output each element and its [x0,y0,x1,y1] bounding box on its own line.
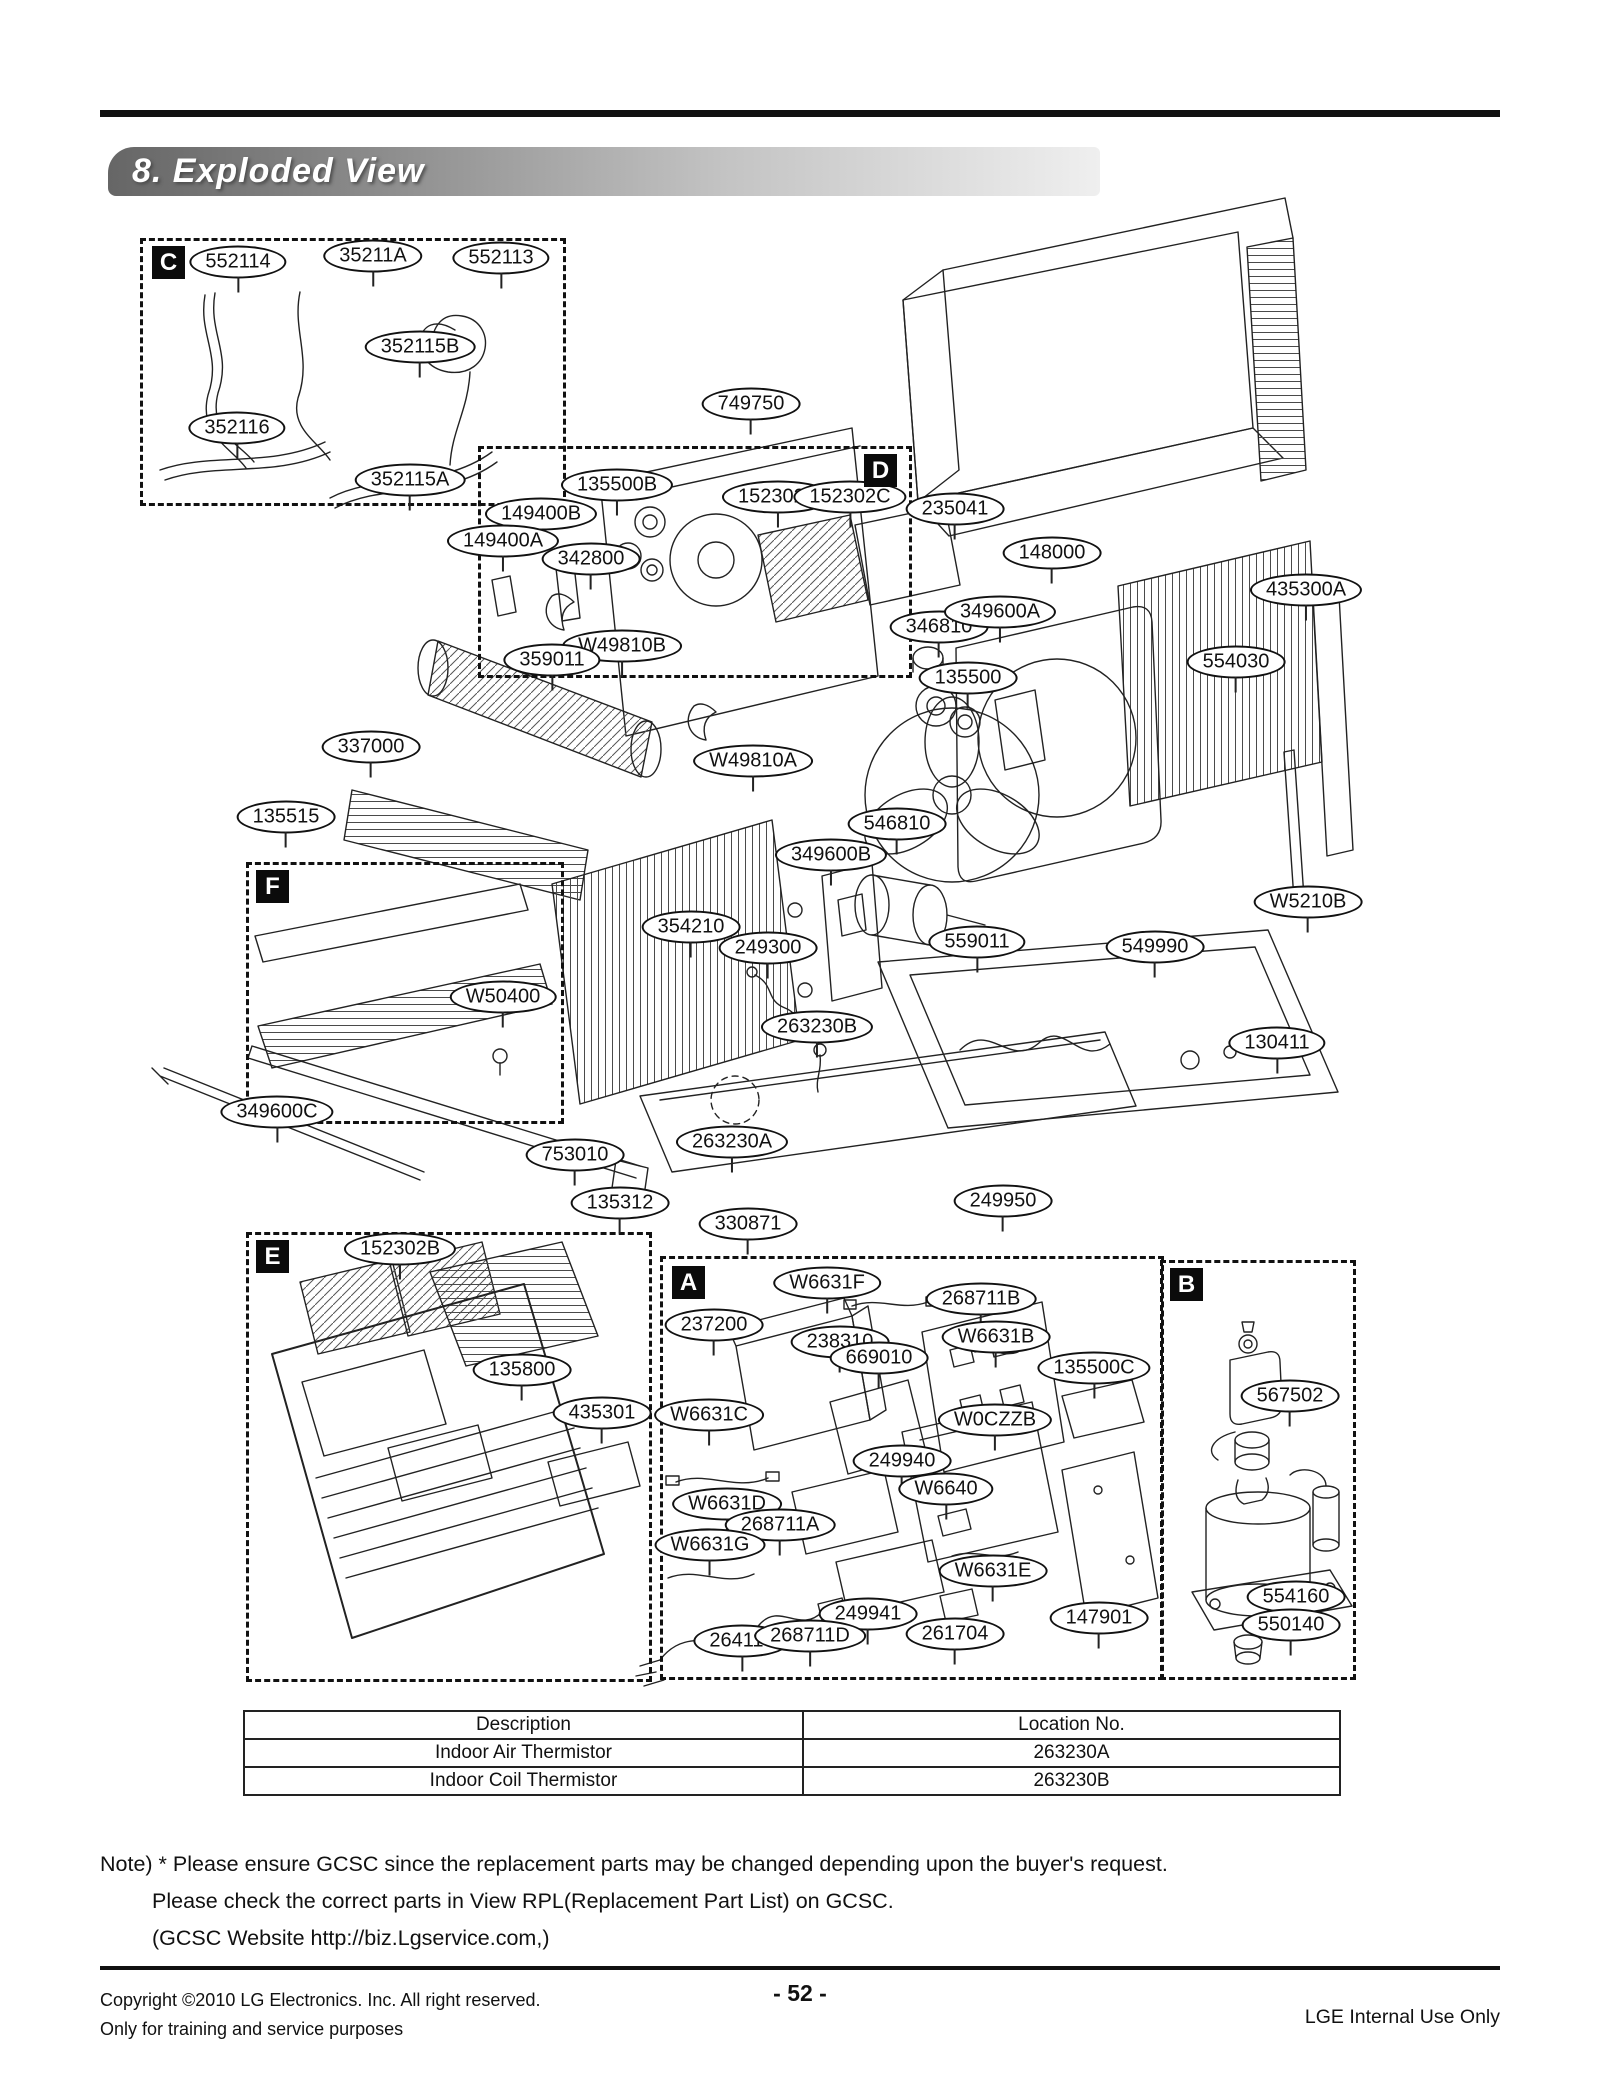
footer-rule [100,1966,1500,1970]
part-label-149400A: 149400A [447,525,559,558]
table-header-description: Description [244,1711,803,1739]
part-label-359011: 359011 [503,644,600,677]
page-number: - 52 - [0,1980,1600,2007]
table-cell-location: 263230A [803,1739,1340,1767]
part-label-237200: 237200 [665,1309,764,1342]
thermistor-location-table: Description Location No. Indoor Air Ther… [243,1710,1341,1796]
part-label-147901: 147901 [1050,1602,1149,1635]
part-label-249950: 249950 [954,1185,1053,1218]
part-label-669010: 669010 [830,1342,929,1375]
part-label-268711B: 268711B [926,1283,1037,1316]
section-badge-A: A [672,1266,705,1299]
table-row: Indoor Air Thermistor 263230A [244,1739,1340,1767]
part-label-261704: 261704 [906,1618,1005,1651]
part-label-550140: 550140 [1242,1609,1341,1642]
part-label-546810: 546810 [848,808,947,841]
manual-page: 8. Exploded View [0,0,1600,2084]
part-label-135312: 135312 [571,1187,670,1220]
part-label-249300: 249300 [719,932,818,965]
part-label-W49810A: W49810A [693,745,813,778]
part-label-337000: 337000 [322,731,421,764]
part-label-749750: 749750 [702,388,801,421]
part-label-135500: 135500 [919,662,1018,695]
part-label-W6631B: W6631B [942,1321,1051,1354]
section-box-E [246,1232,652,1682]
part-label-349600B: 349600B [775,839,887,872]
part-label-554030: 554030 [1187,646,1286,679]
table-cell-location: 263230B [803,1767,1340,1795]
note-line: Please check the correct parts in View R… [100,1883,1168,1920]
part-label-352116: 352116 [188,412,285,445]
part-label-330871: 330871 [699,1208,798,1241]
part-label-349600C: 349600C [220,1096,333,1129]
part-label-W6631F: W6631F [773,1267,881,1300]
part-label-135800: 135800 [473,1354,572,1387]
copyright-line: Only for training and service purposes [100,2015,540,2044]
part-label-135500C: 135500C [1037,1352,1150,1385]
part-label-W6640: W6640 [898,1473,993,1506]
part-label-342800: 342800 [542,543,641,576]
part-label-35211A: 35211A [323,240,422,273]
part-label-152302B: 152302B [344,1233,456,1266]
part-label-W6631C: W6631C [654,1399,764,1432]
part-label-352115B: 352115B [365,331,476,364]
part-label-135515: 135515 [237,801,336,834]
table-cell-description: Indoor Coil Thermistor [244,1767,803,1795]
section-badge-C: C [152,246,185,279]
part-label-W6631G: W6631G [655,1529,766,1562]
part-label-W0CZZB: W0CZZB [938,1404,1052,1437]
note-block: Note) * Please ensure GCSC since the rep… [100,1846,1168,1957]
part-label-559011: 559011 [928,926,1025,959]
part-label-552114: 552114 [189,246,286,279]
part-label-W6631E: W6631E [939,1555,1048,1588]
part-label-552113: 552113 [452,242,549,275]
section-badge-E: E [256,1240,289,1273]
part-label-268711D: 268711D [754,1620,866,1653]
part-label-263230A: 263230A [676,1126,788,1159]
part-label-435301: 435301 [553,1397,652,1430]
part-label-549990: 549990 [1106,931,1205,964]
part-label-567502: 567502 [1241,1380,1340,1413]
part-label-135500B: 135500B [561,469,673,502]
section-badge-D: D [864,454,897,487]
part-label-W5210B: W5210B [1254,886,1363,919]
table-row: Indoor Coil Thermistor 263230B [244,1767,1340,1795]
part-label-148000: 148000 [1003,537,1102,570]
section-badge-F: F [256,870,289,903]
part-label-349600A: 349600A [944,596,1056,629]
part-label-130411: 130411 [1228,1027,1325,1060]
internal-use-label: LGE Internal Use Only [1305,2006,1500,2029]
table-header-row: Description Location No. [244,1711,1340,1739]
part-label-W50400: W50400 [450,981,557,1014]
note-line: Note) * Please ensure GCSC since the rep… [100,1846,1168,1883]
part-label-235041: 235041 [906,493,1005,526]
part-label-352115A: 352115A [355,464,466,497]
note-line: (GCSC Website http://biz.Lgservice.com,) [100,1920,1168,1957]
part-label-435300A: 435300A [1250,574,1362,607]
part-label-263230B: 263230B [761,1011,873,1044]
section-badge-B: B [1170,1268,1203,1301]
part-label-753010: 753010 [526,1139,625,1172]
table-cell-description: Indoor Air Thermistor [244,1739,803,1767]
table-header-location: Location No. [803,1711,1340,1739]
